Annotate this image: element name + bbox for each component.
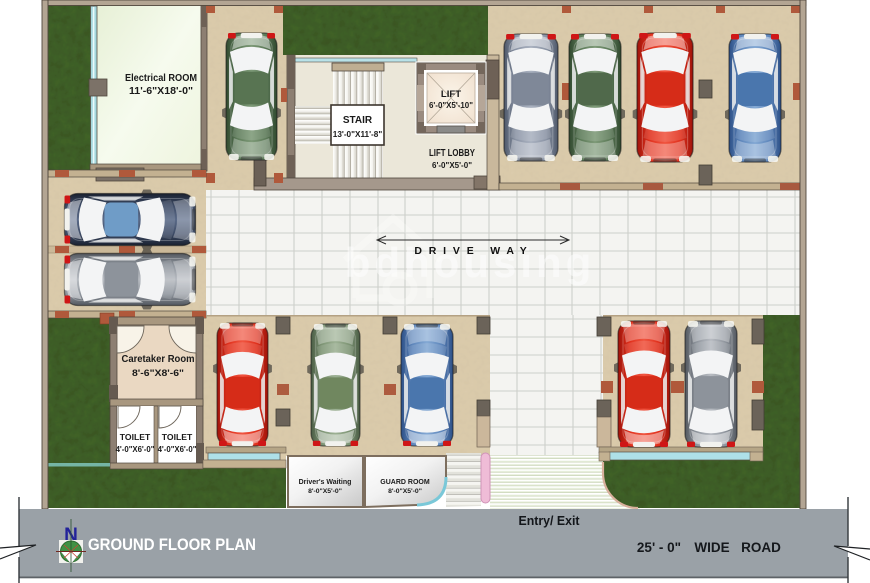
svg-text:Driver's Waiting: Driver's Waiting bbox=[299, 479, 352, 486]
svg-text:TOILET: TOILET bbox=[120, 432, 151, 442]
svg-text:8'-0"X5'-0": 8'-0"X5'-0" bbox=[308, 488, 342, 495]
svg-text:LIFT: LIFT bbox=[441, 89, 461, 100]
svg-text:6'-0"X5'-10": 6'-0"X5'-10" bbox=[429, 100, 473, 110]
svg-text:WIDE: WIDE bbox=[694, 540, 729, 555]
svg-text:6'-0"X5'-0": 6'-0"X5'-0" bbox=[432, 160, 472, 170]
svg-text:ROAD: ROAD bbox=[741, 540, 781, 555]
svg-text:8'-6"X8'-6": 8'-6"X8'-6" bbox=[132, 368, 184, 379]
svg-text:13'-0"X11'-8": 13'-0"X11'-8" bbox=[333, 130, 383, 139]
svg-text:11'-6"X18'-0": 11'-6"X18'-0" bbox=[129, 86, 193, 97]
svg-text:Electrical ROOM: Electrical ROOM bbox=[125, 73, 197, 84]
svg-text:DRIVE WAY: DRIVE WAY bbox=[414, 245, 533, 257]
svg-text:25' - 0": 25' - 0" bbox=[637, 540, 681, 555]
svg-text:GROUND FLOOR PLAN: GROUND FLOOR PLAN bbox=[88, 535, 256, 554]
svg-text:Entry/ Exit: Entry/ Exit bbox=[519, 513, 581, 528]
svg-text:TOILET: TOILET bbox=[162, 432, 193, 442]
svg-text:Caretaker Room: Caretaker Room bbox=[122, 354, 195, 365]
svg-text:STAIR: STAIR bbox=[343, 115, 373, 126]
svg-text:4'-0"X6'-0": 4'-0"X6'-0" bbox=[116, 445, 155, 454]
svg-text:4'-0"X6'-0": 4'-0"X6'-0" bbox=[158, 445, 197, 454]
svg-text:LIFT LOBBY: LIFT LOBBY bbox=[429, 148, 475, 159]
svg-text:8'-0"X5'-0": 8'-0"X5'-0" bbox=[388, 488, 422, 495]
svg-text:GUARD ROOM: GUARD ROOM bbox=[380, 479, 430, 486]
